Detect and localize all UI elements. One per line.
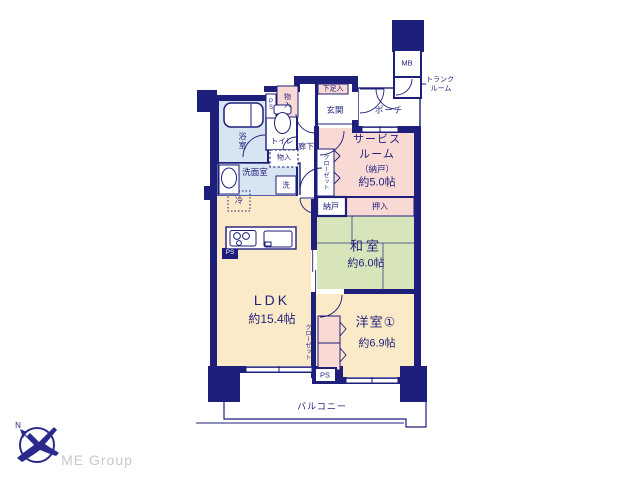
wall-left-stub bbox=[204, 186, 217, 200]
room-label-service-1: サービス bbox=[353, 135, 401, 146]
burner-icon bbox=[234, 233, 241, 240]
window-ldk bbox=[246, 366, 312, 373]
label-ps-top: PS bbox=[268, 99, 274, 111]
label-hallway: 廊下 bbox=[298, 143, 314, 151]
room-size-ldk: 約15.4帖 bbox=[248, 313, 295, 325]
logo-mark bbox=[17, 427, 59, 462]
opening-youshitsu bbox=[316, 289, 344, 294]
pillar-top-right bbox=[392, 20, 424, 52]
pillar-bottom-left bbox=[208, 366, 240, 402]
room-size-washitsu: 約6.0帖 bbox=[347, 259, 384, 270]
label-storage-mid: 物入 bbox=[277, 155, 291, 162]
room-size-youshitsu1: 約6.9帖 bbox=[358, 339, 395, 350]
bathtub-icon bbox=[224, 103, 263, 127]
wall-left bbox=[210, 95, 217, 368]
window-service bbox=[362, 126, 398, 133]
label-bath: 浴室 bbox=[238, 132, 246, 150]
label-north: N bbox=[15, 422, 21, 430]
pillar-bottom-right bbox=[400, 366, 427, 402]
wall-entry-top bbox=[296, 76, 358, 84]
faucet-icon bbox=[265, 242, 271, 246]
room-label-youshitsu1: 洋室① bbox=[356, 316, 397, 329]
room-size-service: 約5.0帖 bbox=[358, 178, 395, 189]
label-closet-west: クローゼット bbox=[304, 324, 310, 360]
washitsu-area bbox=[316, 216, 414, 291]
opening-washitsu bbox=[311, 250, 317, 292]
floorplan-canvas: LDK 約15.4帖 和室 約6.0帖 洋室① 約6.9帖 サービス ルーム （… bbox=[0, 0, 640, 480]
label-trunk-2: ルーム bbox=[431, 86, 452, 93]
burner-icon bbox=[237, 241, 242, 246]
wall-bath-top bbox=[210, 95, 268, 101]
vanity-sink-icon bbox=[222, 168, 237, 188]
label-ps-kitchen: PS bbox=[226, 250, 235, 257]
room-label-service-3: （納戸） bbox=[360, 165, 394, 174]
label-genkan: 玄関 bbox=[326, 106, 343, 115]
wall-right bbox=[414, 126, 421, 377]
room-label-ldk: LDK bbox=[254, 293, 290, 307]
room-label-washitsu: 和室 bbox=[350, 240, 382, 253]
label-closet-service: クローゼット bbox=[322, 154, 328, 190]
label-trunk-1: トランク bbox=[426, 77, 454, 84]
label-porch: ポーチ bbox=[375, 106, 404, 115]
label-fridge: 冷 bbox=[235, 197, 243, 205]
label-nando: 納戸 bbox=[323, 203, 339, 211]
toilet-bowl-icon bbox=[275, 113, 291, 134]
label-oshiire: 押入 bbox=[372, 203, 388, 211]
opening-entry bbox=[352, 92, 358, 120]
label-storage-top: 物入 bbox=[284, 93, 291, 109]
label-washer: 洗 bbox=[282, 181, 290, 189]
window-youshitsu bbox=[346, 377, 398, 384]
label-toilet: トイレ bbox=[271, 137, 294, 145]
wall-ldk-youshitsu bbox=[311, 293, 316, 378]
room-label-service-2: ルーム bbox=[359, 150, 395, 161]
label-ps-bottom: PS bbox=[320, 371, 330, 379]
company-name: ME Group bbox=[61, 453, 133, 467]
label-mb: MB bbox=[401, 59, 412, 67]
label-shoe-box: 下足入 bbox=[323, 86, 344, 93]
burner-icon bbox=[243, 233, 250, 240]
label-balcony: バルコニー bbox=[297, 403, 347, 412]
label-washroom: 洗面室 bbox=[242, 168, 268, 177]
ldk-area bbox=[217, 196, 316, 368]
